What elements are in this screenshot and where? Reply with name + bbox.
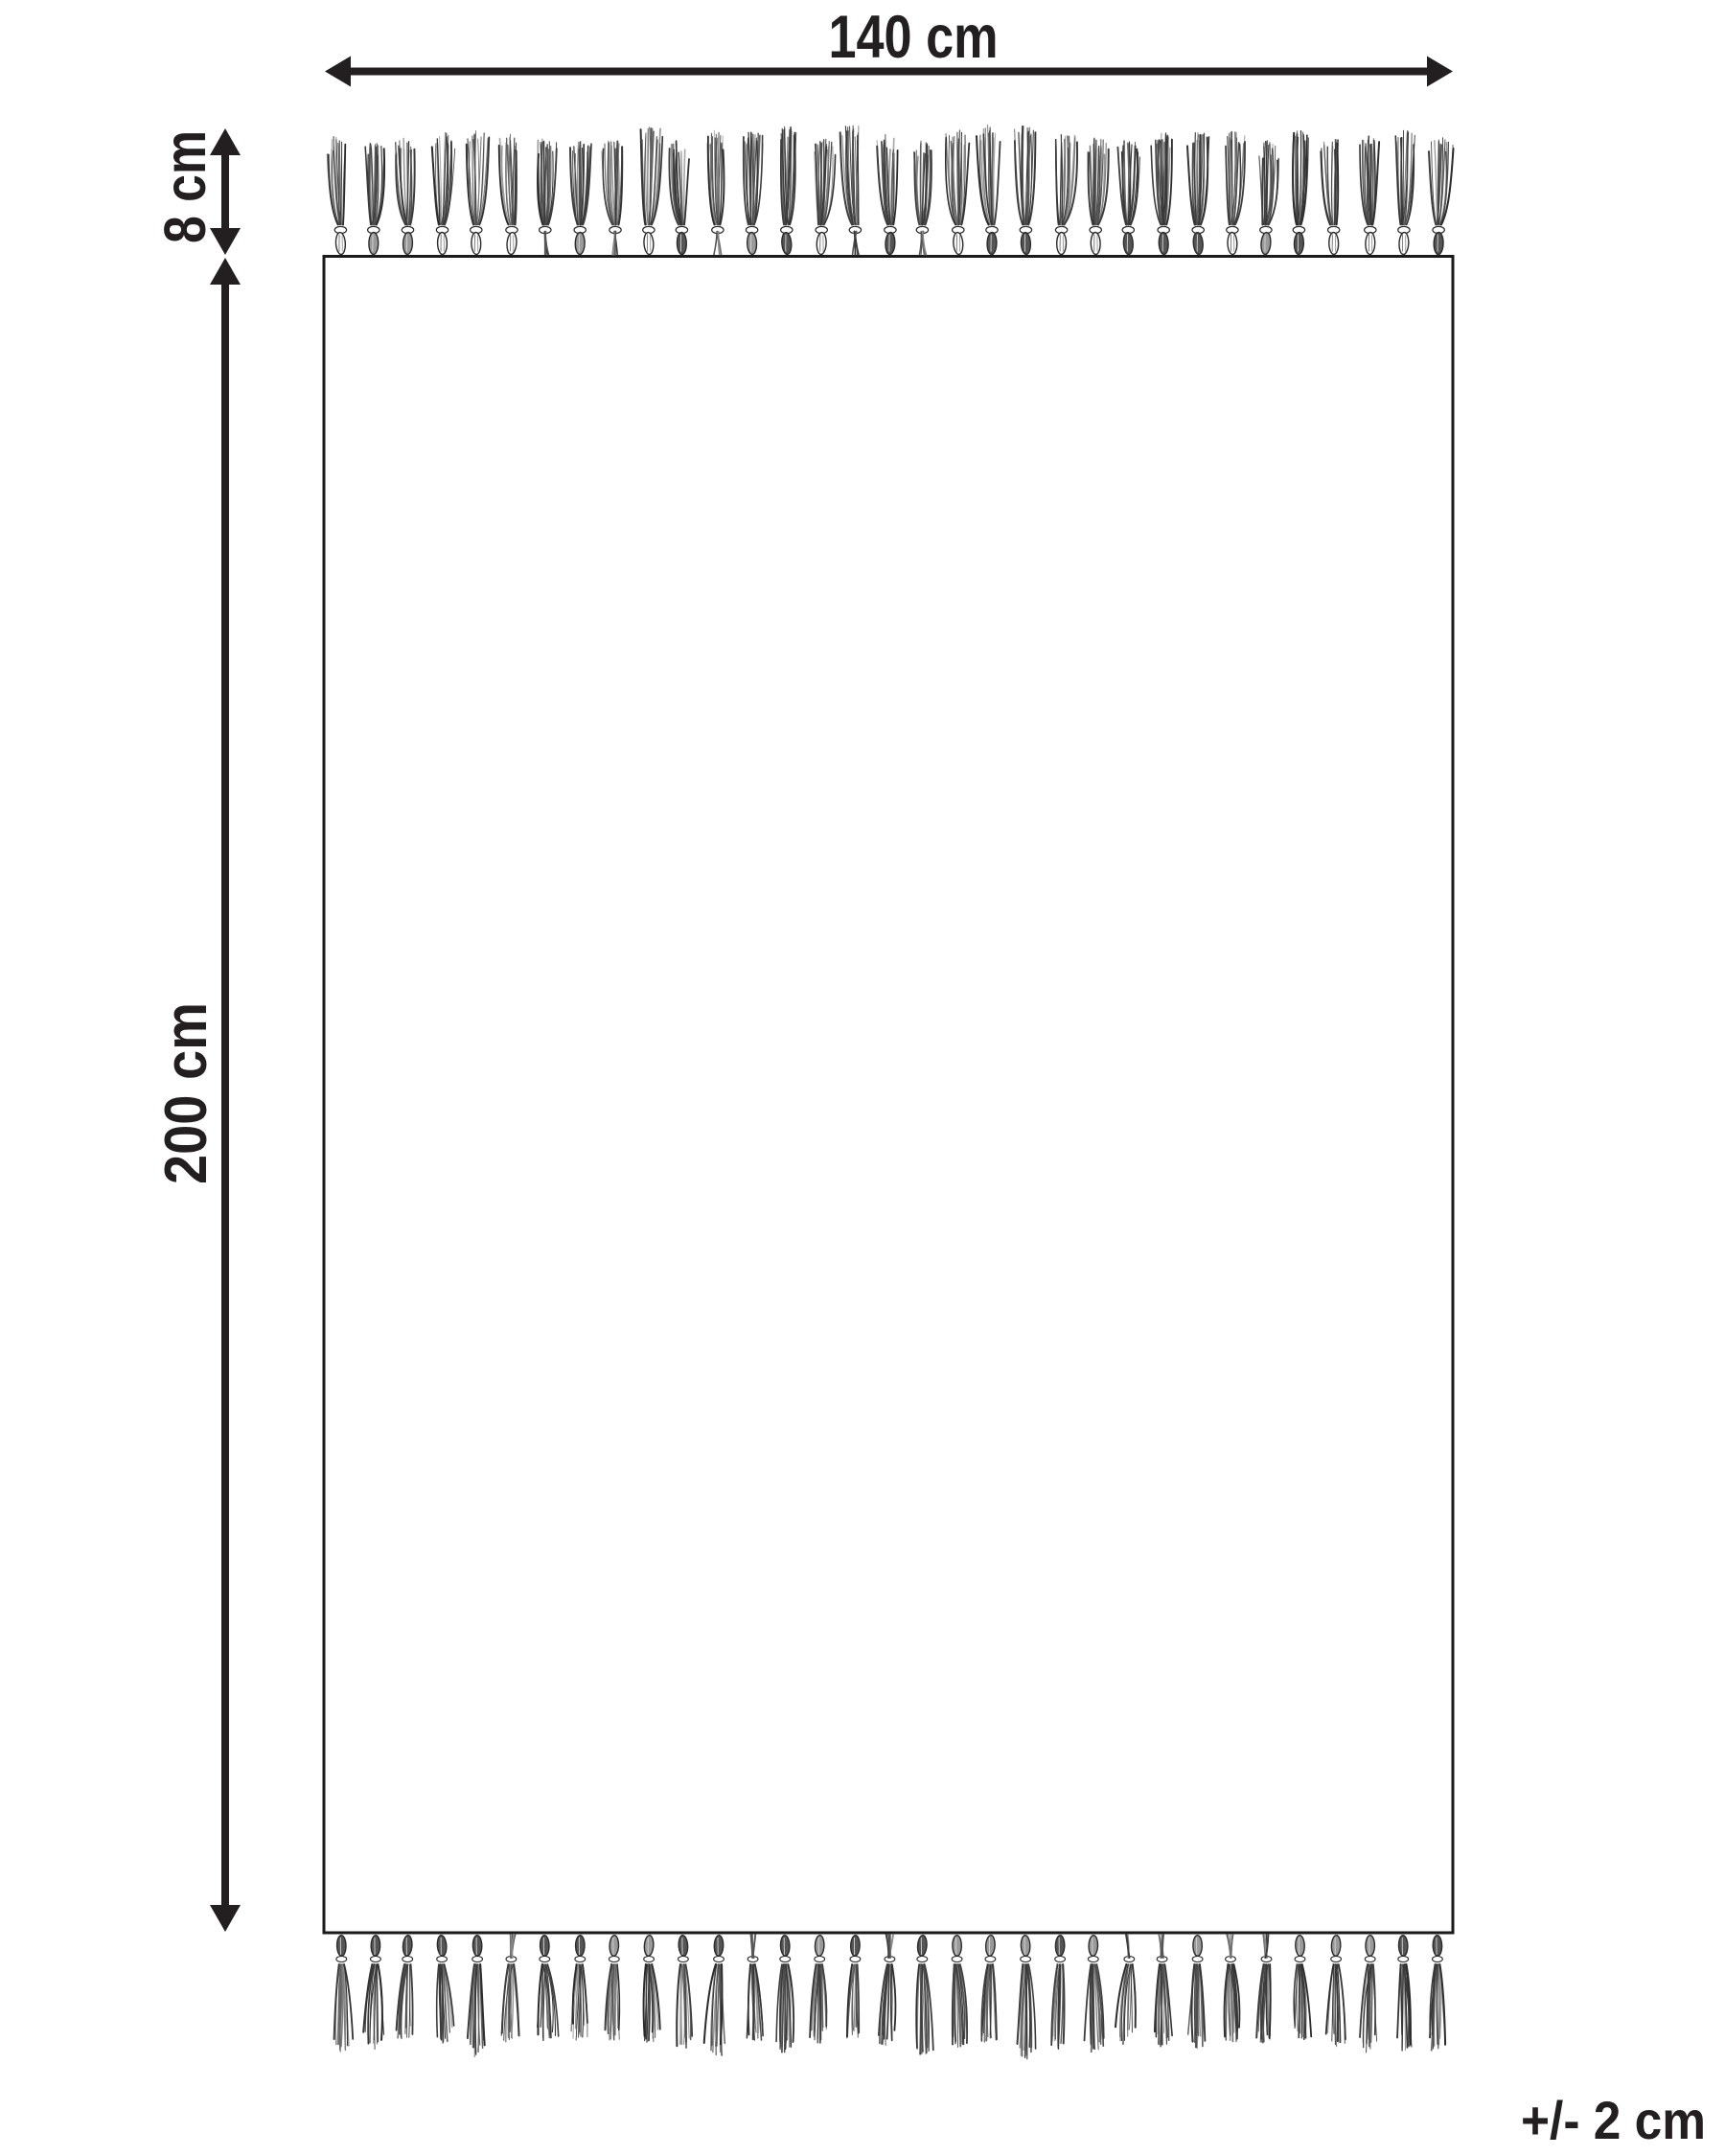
svg-text:+/- 2 cm: +/- 2 cm (1521, 2090, 1706, 2150)
svg-text:8 cm: 8 cm (152, 130, 218, 243)
svg-text:200 cm: 200 cm (153, 1002, 219, 1184)
svg-text:140 cm: 140 cm (829, 4, 999, 71)
